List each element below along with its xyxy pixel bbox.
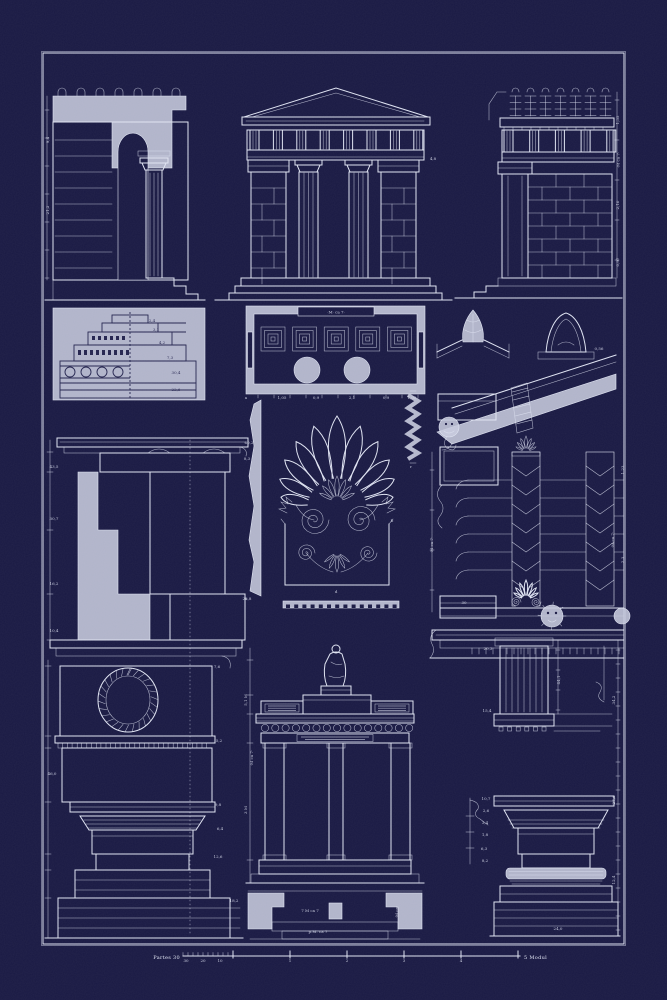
svg-text:5,2: 5,2 bbox=[216, 738, 223, 743]
svg-text:30,4: 30,4 bbox=[172, 370, 181, 375]
svg-text:1,05: 1,05 bbox=[408, 395, 417, 400]
svg-text:10: 10 bbox=[217, 958, 223, 963]
svg-text:·M· ca 7·: ·M· ca 7· bbox=[327, 310, 345, 315]
svg-text:·M ca 7·: ·M ca 7· bbox=[429, 537, 434, 553]
svg-text:3 M: 3 M bbox=[243, 806, 248, 814]
svg-text:8,3: 8,3 bbox=[244, 456, 251, 461]
fortified-wall-section-drawing bbox=[45, 88, 205, 300]
ashlar-wall-entablature-drawing bbox=[455, 88, 622, 298]
scale-partes-label: Partes 30 bbox=[153, 955, 180, 961]
doric-temple-front-drawing bbox=[215, 88, 452, 300]
scale-note-annotations: ·M· ca 7··M ca 7··M ca 7··M ca 7··M ca 7… bbox=[249, 152, 621, 934]
svg-text:4: 4 bbox=[460, 958, 463, 963]
svg-text:1: 1 bbox=[289, 958, 292, 963]
svg-text:·M ca 7·: ·M ca 7· bbox=[249, 750, 254, 766]
svg-text:3,1: 3,1 bbox=[153, 327, 159, 332]
svg-text:2: 2 bbox=[346, 958, 349, 963]
svg-text:2,3: 2,3 bbox=[620, 556, 625, 563]
svg-text:24,0: 24,0 bbox=[554, 926, 563, 931]
svg-text:7,3: 7,3 bbox=[167, 355, 174, 360]
svg-text:46,0: 46,0 bbox=[48, 771, 57, 776]
svg-text:10,4: 10,4 bbox=[50, 628, 59, 633]
palmette-akroterion-drawing bbox=[249, 391, 418, 608]
svg-text:8,2: 8,2 bbox=[482, 858, 489, 863]
svg-text:12,6: 12,6 bbox=[214, 854, 223, 859]
tiled-roof-plan-drawing bbox=[430, 436, 630, 658]
svg-text:15,4: 15,4 bbox=[483, 708, 492, 713]
scale-bar: Partes 30 5 Modul 3020101234 bbox=[153, 951, 547, 963]
coffered-soffit-plan-drawing bbox=[246, 306, 425, 398]
svg-text:9,4: 9,4 bbox=[45, 136, 50, 143]
svg-text:·M ca·: ·M ca· bbox=[394, 906, 399, 919]
svg-text:·M ca 7·: ·M ca 7· bbox=[610, 532, 615, 548]
svg-text:2,1: 2,1 bbox=[349, 395, 355, 400]
svg-text:0,56: 0,56 bbox=[595, 346, 604, 351]
blueprint-poster: Partes 30 5 Modul 3020101234 ·M· ca 7··M… bbox=[0, 0, 667, 1000]
svg-text:1,23: 1,23 bbox=[620, 465, 625, 474]
svg-text:d: d bbox=[335, 589, 338, 594]
svg-text:30,7: 30,7 bbox=[50, 516, 59, 521]
svg-text:0,97: 0,97 bbox=[615, 257, 620, 266]
svg-text:6,4: 6,4 bbox=[217, 826, 224, 831]
svg-text:r: r bbox=[410, 464, 412, 469]
svg-text:34,2: 34,2 bbox=[611, 695, 616, 704]
svg-text:10,7: 10,7 bbox=[482, 796, 491, 801]
svg-text:4,2: 4,2 bbox=[159, 340, 166, 345]
svg-text:22,6: 22,6 bbox=[172, 387, 181, 392]
svg-text:6,3: 6,3 bbox=[481, 846, 488, 851]
svg-text:5,1 M: 5,1 M bbox=[243, 694, 248, 706]
svg-text:60,2: 60,2 bbox=[245, 440, 254, 445]
svg-text:7 M ca 7: 7 M ca 7 bbox=[301, 908, 319, 913]
svg-text:21,2: 21,2 bbox=[45, 205, 50, 214]
svg-text:2,6: 2,6 bbox=[483, 808, 490, 813]
svg-text:30: 30 bbox=[461, 600, 467, 605]
svg-text:2,10: 2,10 bbox=[615, 200, 620, 209]
pedestal-and-column-elevation-drawing bbox=[45, 438, 248, 938]
svg-text:a: a bbox=[245, 395, 248, 400]
funerary-monument-drawing bbox=[246, 645, 424, 939]
svg-text:16,2: 16,2 bbox=[50, 581, 59, 586]
svg-text:30: 30 bbox=[183, 958, 189, 963]
svg-text:1,35: 1,35 bbox=[615, 115, 620, 124]
svg-text:1,8: 1,8 bbox=[482, 832, 489, 837]
doric-order-details-drawing bbox=[466, 638, 620, 936]
svg-text:20: 20 bbox=[200, 958, 206, 963]
svg-text:12,4: 12,4 bbox=[611, 875, 616, 884]
svg-text:9,8: 9,8 bbox=[215, 802, 222, 807]
svg-text:4,8: 4,8 bbox=[430, 156, 437, 161]
stepped-tomb-panel-drawing bbox=[53, 308, 205, 400]
roof-ridge-tile-details-drawing bbox=[437, 310, 616, 450]
svg-text:2,4: 2,4 bbox=[149, 318, 156, 323]
svg-text:·M ca 7·: ·M ca 7· bbox=[616, 152, 621, 168]
svg-text:0,9: 0,9 bbox=[313, 395, 320, 400]
svg-text:43,5: 43,5 bbox=[50, 464, 59, 469]
svg-text:p.M. ca 7: p.M. ca 7 bbox=[309, 929, 328, 934]
svg-text:27,6: 27,6 bbox=[611, 795, 616, 804]
plate-artwork: Partes 30 5 Modul 3020101234 ·M· ca 7··M… bbox=[0, 0, 667, 1000]
svg-text:3,4: 3,4 bbox=[482, 820, 489, 825]
svg-text:3: 3 bbox=[403, 958, 406, 963]
svg-text:7,6: 7,6 bbox=[214, 664, 221, 669]
svg-text:44,1: 44,1 bbox=[556, 676, 561, 685]
svg-text:20,3: 20,3 bbox=[484, 646, 493, 651]
scale-ticks: 3020101234 bbox=[183, 951, 520, 963]
svg-text:1,05: 1,05 bbox=[278, 395, 287, 400]
svg-text:0,9: 0,9 bbox=[383, 395, 390, 400]
svg-text:b: b bbox=[391, 518, 394, 523]
svg-text:18,2: 18,2 bbox=[230, 898, 239, 903]
scale-modul-label: 5 Modul bbox=[524, 955, 547, 961]
